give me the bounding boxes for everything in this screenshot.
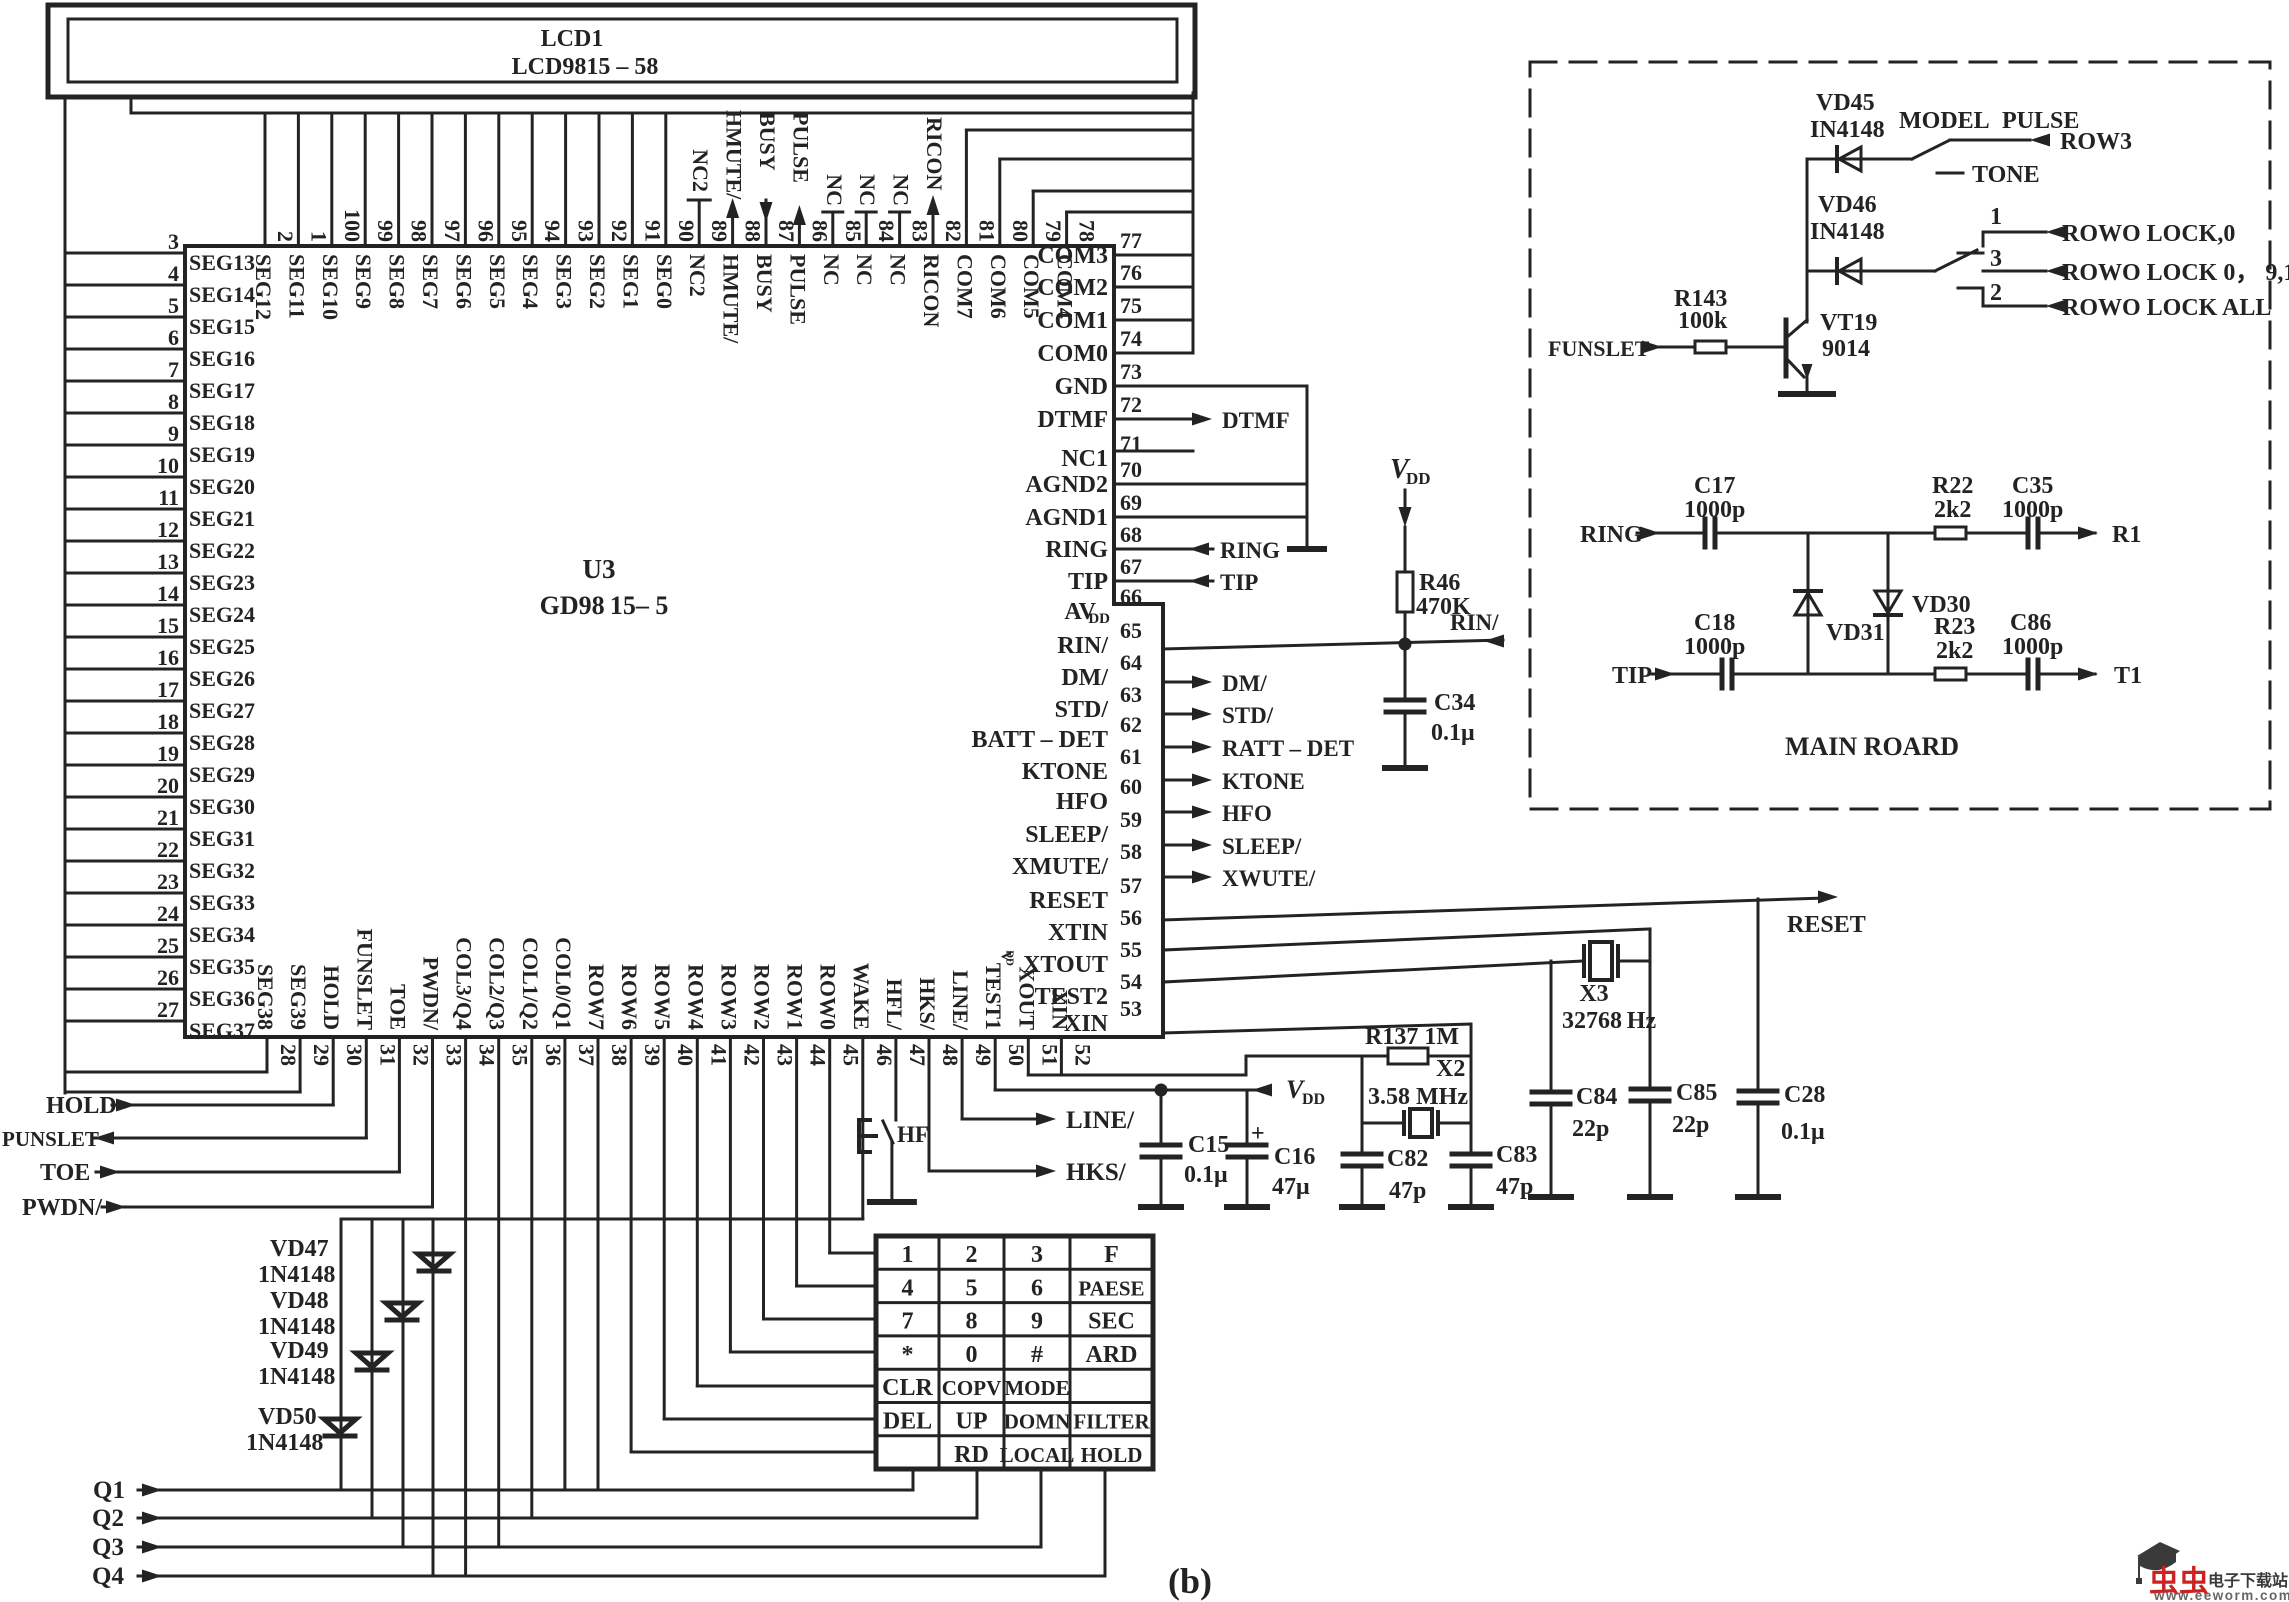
svg-text:SLEEP/: SLEEP/ (1222, 834, 1302, 859)
svg-text:TOE: TOE (385, 984, 410, 1030)
svg-text:3.58 MHz: 3.58 MHz (1368, 1084, 1468, 1110)
svg-text:VD31: VD31 (1826, 620, 1885, 646)
svg-text:2: 2 (273, 231, 298, 242)
svg-text:(b): (b) (1168, 1561, 1212, 1601)
svg-text:HOLD: HOLD (46, 1093, 117, 1119)
svg-text:SEG6: SEG6 (451, 254, 476, 309)
svg-text:29: 29 (309, 1044, 334, 1066)
svg-text:66: 66 (1120, 584, 1142, 609)
svg-text:C16: C16 (1274, 1144, 1315, 1170)
svg-text:46: 46 (872, 1044, 897, 1066)
svg-text:51: 51 (1037, 1044, 1062, 1066)
svg-text:#: # (1031, 1342, 1043, 1368)
svg-text:25: 25 (157, 933, 179, 958)
svg-text:41: 41 (706, 1044, 731, 1066)
svg-text:2: 2 (1990, 280, 2002, 306)
svg-text:2k2: 2k2 (1934, 497, 1971, 523)
svg-text:1: 1 (902, 1242, 914, 1268)
svg-text:73: 73 (1120, 359, 1142, 384)
svg-text:LCD1: LCD1 (541, 26, 604, 52)
svg-text:SEG4: SEG4 (518, 254, 543, 309)
svg-text:74: 74 (1120, 326, 1142, 351)
svg-text:47μ: 47μ (1272, 1174, 1310, 1200)
svg-text:1N4148: 1N4148 (258, 1314, 335, 1340)
svg-text:CLR: CLR (882, 1375, 933, 1401)
svg-text:PWDN/: PWDN/ (419, 957, 444, 1031)
svg-text:58: 58 (1120, 839, 1142, 864)
svg-text:DM/: DM/ (1222, 671, 1267, 696)
svg-text:TIP: TIP (1220, 570, 1258, 595)
svg-text:SEG9: SEG9 (351, 254, 376, 309)
svg-text:17: 17 (157, 677, 179, 702)
svg-text:LCD9815 – 58: LCD9815 – 58 (512, 54, 659, 80)
svg-text:SEG21: SEG21 (189, 506, 255, 531)
svg-text:PUNSLET: PUNSLET (2, 1127, 99, 1151)
svg-text:88: 88 (741, 220, 766, 242)
svg-text:RESET: RESET (1029, 888, 1108, 914)
svg-text:NC2: NC2 (688, 149, 713, 192)
svg-text:78: 78 (1075, 220, 1100, 242)
svg-text:67: 67 (1120, 554, 1142, 579)
svg-text:82: 82 (941, 220, 966, 242)
svg-text:RING: RING (1220, 538, 1280, 563)
svg-text:6: 6 (168, 325, 179, 350)
svg-text:VD46: VD46 (1818, 192, 1877, 218)
svg-text:0.1μ: 0.1μ (1781, 1119, 1825, 1145)
svg-text:*: * (902, 1342, 914, 1368)
svg-text:1: 1 (306, 231, 331, 242)
svg-text:RIN/: RIN/ (1450, 610, 1499, 635)
svg-text:COM2: COM2 (1037, 275, 1108, 301)
svg-text:HKS/: HKS/ (915, 977, 940, 1030)
svg-text:SEG24: SEG24 (189, 602, 255, 627)
svg-text:FILTER: FILTER (1073, 1410, 1150, 1434)
svg-text:57: 57 (1120, 873, 1142, 898)
svg-text:52: 52 (1070, 1044, 1095, 1066)
svg-text:47: 47 (905, 1044, 930, 1066)
svg-text:28: 28 (276, 1044, 301, 1066)
svg-text:SEG27: SEG27 (189, 698, 255, 723)
svg-text:Q3: Q3 (92, 1534, 124, 1561)
svg-text:SEG15: SEG15 (189, 314, 255, 339)
svg-text:61: 61 (1120, 744, 1142, 769)
svg-text:PWDN/: PWDN/ (22, 1195, 102, 1221)
svg-text:X3: X3 (1579, 981, 1608, 1007)
svg-text:HMUTE/: HMUTE/ (722, 110, 747, 200)
svg-text:ROW0: ROW0 (816, 964, 841, 1030)
svg-text:92: 92 (607, 220, 632, 242)
svg-text:RESET: RESET (1787, 912, 1866, 938)
svg-text:STD/: STD/ (1222, 703, 1274, 728)
svg-text:47p: 47p (1389, 1178, 1426, 1204)
svg-text:RICON: RICON (922, 117, 947, 190)
svg-text:SEG13: SEG13 (189, 250, 255, 275)
svg-text:37: 37 (574, 1044, 599, 1066)
svg-text:C82: C82 (1387, 1146, 1428, 1172)
svg-text:ROWO LOCK,0: ROWO LOCK,0 (2062, 221, 2235, 247)
svg-text:100: 100 (340, 209, 365, 242)
svg-text:26: 26 (157, 965, 179, 990)
svg-text:3: 3 (1990, 246, 2002, 272)
svg-text:XIN: XIN (1047, 990, 1072, 1030)
svg-text:PULSE: PULSE (788, 112, 813, 183)
svg-text:LINE/: LINE/ (1066, 1107, 1135, 1134)
svg-text:9: 9 (168, 421, 179, 446)
svg-text:5: 5 (168, 293, 179, 318)
svg-text:SEG30: SEG30 (189, 794, 255, 819)
svg-text:GD98 15– 5: GD98 15– 5 (540, 591, 669, 620)
svg-text:U3: U3 (583, 554, 616, 584)
svg-text:ROW5: ROW5 (650, 964, 675, 1030)
svg-text:80: 80 (1008, 220, 1033, 242)
svg-text:68: 68 (1120, 522, 1142, 547)
svg-text:84: 84 (874, 220, 899, 242)
svg-text:DD: DD (1406, 469, 1431, 488)
svg-text:0.1μ: 0.1μ (1431, 720, 1475, 746)
svg-text:R23: R23 (1934, 614, 1975, 640)
svg-text:97: 97 (440, 220, 465, 242)
svg-text:SEG1: SEG1 (618, 254, 643, 309)
svg-text:69: 69 (1120, 490, 1142, 515)
svg-text:SLEEP/: SLEEP/ (1025, 822, 1108, 848)
svg-text:HFO: HFO (1222, 801, 1272, 826)
svg-text:LINE/: LINE/ (948, 970, 973, 1031)
svg-text:C15: C15 (1188, 1132, 1229, 1158)
svg-text:DD: DD (1088, 611, 1110, 627)
svg-text:HOLD: HOLD (319, 965, 344, 1030)
svg-text:1000p: 1000p (2002, 497, 2063, 523)
svg-text:59: 59 (1120, 807, 1142, 832)
svg-text:SEG28: SEG28 (189, 730, 255, 755)
svg-text:COL1/Q2: COL1/Q2 (518, 937, 543, 1030)
svg-text:COM0: COM0 (1037, 341, 1108, 367)
svg-text:SEG23: SEG23 (189, 570, 255, 595)
svg-text:SEG12: SEG12 (251, 254, 276, 320)
svg-text:22p: 22p (1572, 1116, 1609, 1142)
svg-text:8: 8 (966, 1309, 978, 1335)
svg-text:PULSE: PULSE (785, 254, 810, 325)
svg-text:ROWO LOCK ALL: ROWO LOCK ALL (2062, 295, 2271, 321)
svg-text:NC2: NC2 (685, 254, 710, 297)
svg-text:45: 45 (839, 1044, 864, 1066)
svg-text:93: 93 (574, 220, 599, 242)
svg-text:10: 10 (157, 453, 179, 478)
svg-text:MAIN ROARD: MAIN ROARD (1785, 732, 1959, 761)
svg-text:32: 32 (408, 1044, 433, 1066)
svg-text:SEG5: SEG5 (485, 254, 510, 309)
svg-text:75: 75 (1120, 293, 1142, 318)
svg-text:1: 1 (1990, 204, 2002, 230)
svg-text:X2: X2 (1436, 1056, 1465, 1082)
svg-text:11: 11 (158, 485, 179, 510)
svg-text:63: 63 (1120, 682, 1142, 707)
svg-text:55: 55 (1120, 937, 1142, 962)
svg-text:RING: RING (1045, 537, 1108, 563)
svg-text:XTIN: XTIN (1048, 920, 1109, 946)
svg-text:SEG17: SEG17 (189, 378, 255, 403)
svg-text:47p: 47p (1496, 1174, 1533, 1200)
svg-text:32768 Hz: 32768 Hz (1562, 1008, 1656, 1034)
svg-text:R22: R22 (1932, 473, 1973, 499)
svg-text:SEG8: SEG8 (385, 254, 410, 309)
svg-text:94: 94 (540, 220, 565, 242)
svg-text:3: 3 (1031, 1242, 1043, 1268)
svg-text:9: 9 (1031, 1309, 1043, 1335)
svg-text:ROW7: ROW7 (584, 964, 609, 1030)
svg-text:4: 4 (902, 1275, 914, 1301)
svg-text:16: 16 (157, 645, 179, 670)
svg-text:HF: HF (897, 1122, 929, 1147)
svg-text:Q2: Q2 (92, 1505, 124, 1532)
svg-text:C86: C86 (2010, 610, 2051, 636)
svg-text:KTONE: KTONE (1022, 759, 1108, 785)
svg-text:HFL/: HFL/ (882, 979, 907, 1031)
svg-text:COM3: COM3 (1037, 243, 1108, 269)
svg-text:54: 54 (1120, 969, 1142, 994)
svg-text:AGND1: AGND1 (1025, 505, 1108, 531)
svg-text:SEG7: SEG7 (418, 254, 443, 309)
svg-text:60: 60 (1120, 774, 1142, 799)
svg-text:5: 5 (966, 1275, 978, 1301)
svg-text:SEG25: SEG25 (189, 634, 255, 659)
svg-text:89: 89 (707, 220, 732, 242)
svg-text:49: 49 (971, 1044, 996, 1066)
svg-text:8: 8 (168, 389, 179, 414)
svg-text:VD48: VD48 (270, 1288, 329, 1314)
svg-text:SEG20: SEG20 (189, 474, 255, 499)
svg-text:2: 2 (966, 1242, 978, 1268)
svg-text:SEG18: SEG18 (189, 410, 255, 435)
svg-text:91: 91 (640, 220, 665, 242)
svg-text:C28: C28 (1784, 1082, 1825, 1108)
svg-text:SEG10: SEG10 (318, 254, 343, 320)
svg-text:BUSY: BUSY (752, 254, 777, 313)
svg-text:36: 36 (541, 1044, 566, 1066)
svg-text:RING: RING (1580, 522, 1643, 548)
svg-text:4: 4 (168, 261, 179, 286)
svg-text:TIP: TIP (1612, 663, 1652, 689)
svg-text:65: 65 (1120, 618, 1142, 643)
svg-text:R46: R46 (1419, 570, 1460, 596)
svg-text:30: 30 (342, 1044, 367, 1066)
svg-text:SEG14: SEG14 (189, 282, 255, 307)
svg-text:RATT – DET: RATT – DET (1222, 736, 1354, 761)
svg-text:MODE: MODE (1004, 1376, 1069, 1400)
svg-text:NC: NC (886, 254, 911, 286)
svg-text:27: 27 (157, 997, 179, 1022)
svg-text:HOLD: HOLD (1081, 1443, 1143, 1467)
svg-text:50: 50 (1004, 1044, 1029, 1066)
svg-text:13: 13 (157, 549, 179, 574)
svg-text:81: 81 (974, 220, 999, 242)
svg-text:ROWO LOCK 0， 9,16: ROWO LOCK 0， 9,16 (2062, 260, 2289, 286)
svg-text:COL2/Q3: COL2/Q3 (485, 937, 510, 1030)
svg-text:C18: C18 (1694, 610, 1735, 636)
svg-text:72: 72 (1120, 392, 1142, 417)
svg-text:96: 96 (473, 220, 498, 242)
svg-text:C83: C83 (1496, 1142, 1537, 1168)
svg-text:83: 83 (908, 220, 933, 242)
svg-text:IN4148: IN4148 (1810, 117, 1885, 143)
svg-text:KTONE: KTONE (1222, 769, 1305, 794)
svg-text:www.eeworm.com: www.eeworm.com (2153, 1588, 2289, 1602)
svg-text:DEL: DEL (883, 1409, 932, 1435)
svg-text:21: 21 (157, 805, 179, 830)
svg-text:TIP: TIP (1068, 569, 1108, 595)
svg-text:95: 95 (507, 220, 532, 242)
svg-text:DTMF: DTMF (1037, 407, 1108, 433)
svg-text:35: 35 (508, 1044, 533, 1066)
svg-text:15: 15 (157, 613, 179, 638)
svg-text:48: 48 (938, 1044, 963, 1066)
svg-text:86: 86 (807, 220, 832, 242)
svg-text:1N4148: 1N4148 (258, 1364, 335, 1390)
svg-text:NC1: NC1 (1061, 446, 1108, 472)
svg-text:DTMF: DTMF (1222, 408, 1290, 433)
svg-text:20: 20 (157, 773, 179, 798)
svg-text:SEG39: SEG39 (286, 964, 311, 1030)
svg-text:PAESE: PAESE (1078, 1276, 1144, 1300)
svg-text:1000p: 1000p (1684, 634, 1745, 660)
svg-text:SEG2: SEG2 (585, 254, 610, 309)
svg-text:DD: DD (1003, 950, 1015, 966)
svg-text:SEG33: SEG33 (189, 890, 255, 915)
svg-text:ROW2: ROW2 (750, 964, 775, 1030)
svg-text:1000p: 1000p (2002, 634, 2063, 660)
svg-text:23: 23 (157, 869, 179, 894)
svg-text:GND: GND (1055, 374, 1108, 400)
svg-text:40: 40 (673, 1044, 698, 1066)
svg-text:TONE: TONE (1972, 162, 2040, 188)
svg-text:19: 19 (157, 741, 179, 766)
svg-text:NC: NC (852, 254, 877, 286)
svg-text:SEG35: SEG35 (189, 954, 255, 979)
svg-text:STD/: STD/ (1055, 697, 1109, 723)
svg-text:DM/: DM/ (1061, 665, 1108, 691)
svg-text:C85: C85 (1676, 1080, 1717, 1106)
svg-text:TOE: TOE (40, 1160, 90, 1186)
svg-text:COL3/Q4: COL3/Q4 (452, 937, 477, 1030)
svg-text:0.1μ: 0.1μ (1184, 1162, 1228, 1188)
svg-text:ROW1: ROW1 (783, 964, 808, 1030)
svg-text:ROW3: ROW3 (2060, 129, 2132, 155)
svg-text:98: 98 (407, 220, 432, 242)
svg-text:SEG31: SEG31 (189, 826, 255, 851)
svg-text:33: 33 (442, 1044, 467, 1066)
svg-text:MODEL: MODEL (1899, 108, 1990, 134)
svg-text:44: 44 (806, 1044, 831, 1066)
svg-text:SEG36: SEG36 (189, 986, 255, 1011)
svg-text:F: F (1104, 1242, 1119, 1268)
svg-text:0: 0 (966, 1342, 978, 1368)
svg-text:SEG19: SEG19 (189, 442, 255, 467)
svg-text:COM7: COM7 (952, 254, 977, 319)
svg-text:COPV: COPV (942, 1376, 1002, 1400)
svg-text:43: 43 (773, 1044, 798, 1066)
svg-text:76: 76 (1120, 260, 1142, 285)
svg-text:9014: 9014 (1822, 336, 1870, 362)
svg-text:12: 12 (157, 517, 179, 542)
svg-text:R137 1M: R137 1M (1365, 1024, 1459, 1050)
svg-text:HMUTE/: HMUTE/ (719, 254, 744, 344)
svg-text:38: 38 (607, 1044, 632, 1066)
svg-text:39: 39 (640, 1044, 665, 1066)
svg-text:VD45: VD45 (1816, 90, 1875, 116)
svg-text:62: 62 (1120, 712, 1142, 737)
svg-text:VD49: VD49 (270, 1338, 329, 1364)
svg-text:LOCAL: LOCAL (1000, 1443, 1075, 1467)
svg-text:ROW4: ROW4 (683, 964, 708, 1030)
svg-text:SEG3: SEG3 (552, 254, 577, 309)
svg-text:XOUT: XOUT (1014, 966, 1039, 1030)
svg-text:FUNSLET: FUNSLET (1548, 336, 1650, 361)
svg-text:3: 3 (168, 229, 179, 254)
svg-text:85: 85 (841, 220, 866, 242)
svg-text:SEG32: SEG32 (189, 858, 255, 883)
svg-text:SEG0: SEG0 (652, 254, 677, 309)
svg-text:AGND2: AGND2 (1025, 472, 1108, 498)
svg-text:100k: 100k (1678, 308, 1728, 334)
svg-text:BUSY: BUSY (755, 112, 780, 171)
svg-text:HFO: HFO (1056, 789, 1108, 815)
svg-text:79: 79 (1041, 220, 1066, 242)
svg-text:VD50: VD50 (258, 1404, 317, 1430)
svg-text:77: 77 (1120, 228, 1142, 253)
svg-text:VT19: VT19 (1820, 310, 1877, 336)
svg-text:BATT – DET: BATT – DET (972, 727, 1109, 753)
svg-text:IN4148: IN4148 (1810, 219, 1885, 245)
svg-text:RD: RD (954, 1442, 989, 1468)
svg-text:C17: C17 (1694, 473, 1735, 499)
svg-text:NC: NC (819, 254, 844, 286)
svg-text:SEG37: SEG37 (189, 1018, 255, 1043)
svg-text:SEG16: SEG16 (189, 346, 255, 371)
svg-text:53: 53 (1120, 996, 1142, 1021)
svg-text:T1: T1 (2114, 663, 2142, 689)
svg-text:VD47: VD47 (270, 1236, 329, 1262)
svg-text:64: 64 (1120, 650, 1142, 675)
svg-text:SEG11: SEG11 (284, 254, 309, 319)
svg-text:C34: C34 (1434, 690, 1475, 716)
svg-text:ROW3: ROW3 (716, 964, 741, 1030)
svg-text:90: 90 (674, 220, 699, 242)
svg-text:1N4148: 1N4148 (246, 1430, 323, 1456)
svg-text:99: 99 (373, 220, 398, 242)
svg-text:14: 14 (157, 581, 179, 606)
svg-text:TEST1: TEST1 (981, 963, 1006, 1030)
svg-text:1N4148: 1N4148 (258, 1262, 335, 1288)
svg-text:XWUTE/: XWUTE/ (1222, 866, 1316, 891)
svg-text:ARD: ARD (1086, 1342, 1138, 1368)
svg-text:22: 22 (157, 837, 179, 862)
svg-text:R1: R1 (2112, 522, 2141, 548)
svg-text:HKS/: HKS/ (1066, 1159, 1127, 1186)
svg-text:SEG34: SEG34 (189, 922, 255, 947)
svg-text:UP: UP (956, 1409, 988, 1435)
svg-text:RICON: RICON (919, 254, 944, 327)
svg-text:34: 34 (475, 1044, 500, 1066)
svg-text:C84: C84 (1576, 1084, 1617, 1110)
svg-text:70: 70 (1120, 457, 1142, 482)
svg-text:COM1: COM1 (1037, 308, 1108, 334)
svg-text:DOMN: DOMN (1004, 1410, 1071, 1434)
svg-text:24: 24 (157, 901, 179, 926)
svg-text:22p: 22p (1672, 1112, 1709, 1138)
svg-text:18: 18 (157, 709, 179, 734)
svg-text:7: 7 (168, 357, 179, 382)
svg-text:C35: C35 (2012, 473, 2053, 499)
svg-text:71: 71 (1120, 431, 1142, 456)
